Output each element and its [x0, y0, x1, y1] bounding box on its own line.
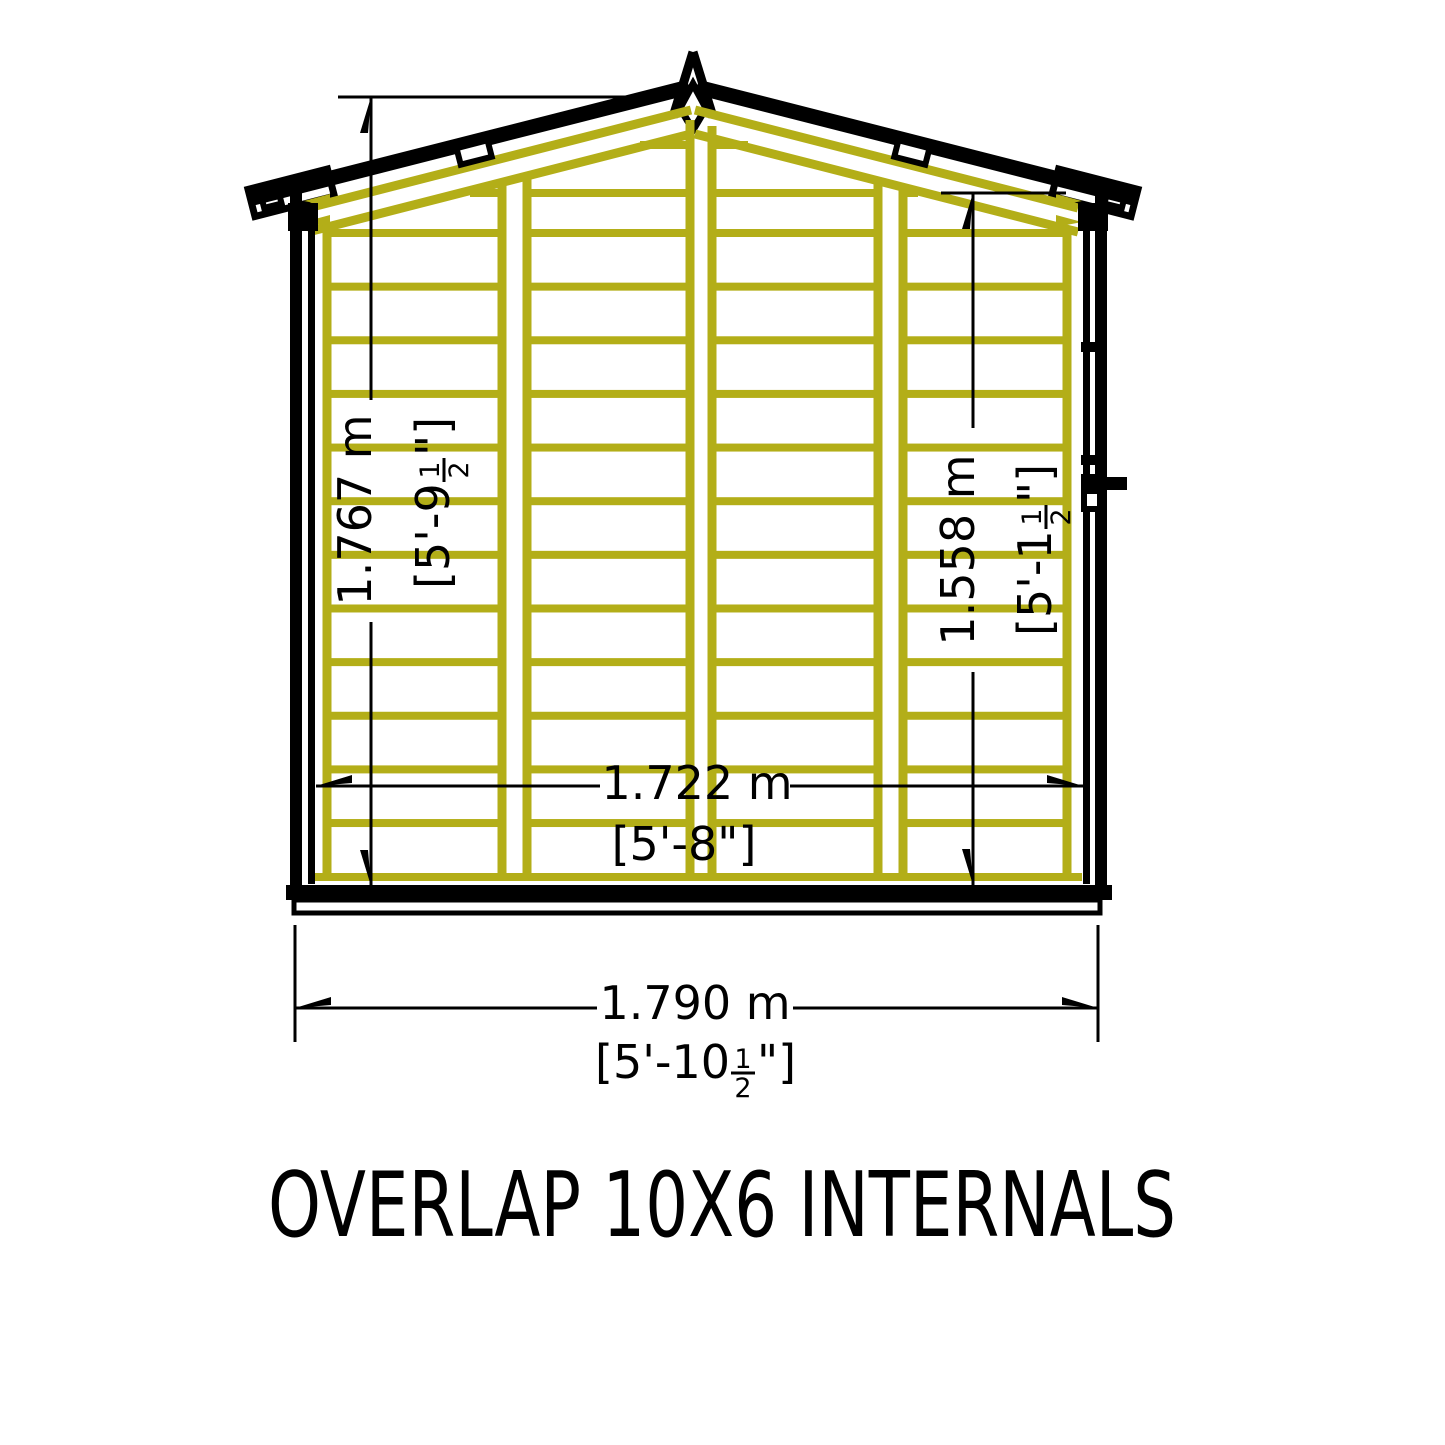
door-handle — [1107, 477, 1127, 490]
rail — [527, 283, 690, 291]
rail — [903, 819, 1067, 827]
svg-text:"]: "] — [757, 1035, 796, 1089]
internal-width-metric: 1.722 m — [601, 756, 792, 810]
gable-rail — [470, 189, 502, 197]
rail — [712, 551, 878, 559]
rail — [327, 283, 502, 291]
rail — [903, 658, 1067, 666]
stud — [498, 181, 507, 881]
ridge-height-metric: 1.767 m — [328, 414, 382, 605]
rail — [712, 336, 878, 344]
external-width-imperial: [5'-10 1 2 "] — [595, 1035, 796, 1104]
rail — [527, 551, 690, 559]
rail — [903, 390, 1067, 398]
arrow-left-icon — [316, 775, 352, 786]
internal-width-imperial: [5'-8"] — [612, 817, 757, 871]
rail — [712, 712, 878, 720]
eaves-height-metric: 1.558 m — [931, 454, 985, 645]
rail — [903, 765, 1067, 773]
apex-finial — [673, 52, 713, 130]
gable-rail — [527, 189, 690, 197]
gable-rail — [712, 141, 748, 149]
left-wall — [288, 192, 318, 899]
rail — [903, 444, 1067, 452]
right-rafter-lower — [695, 134, 1078, 232]
svg-text:[5'-10: [5'-10 — [595, 1035, 730, 1089]
svg-text:2: 2 — [444, 461, 475, 478]
rail — [527, 390, 690, 398]
stud — [523, 174, 532, 881]
gable-rail — [712, 189, 878, 197]
svg-text:"]: "] — [406, 417, 460, 456]
svg-text:1: 1 — [734, 1044, 751, 1075]
rail — [327, 390, 502, 398]
rail — [712, 283, 878, 291]
svg-text:"]: "] — [1008, 464, 1062, 503]
rail — [712, 497, 878, 505]
svg-text:[5'-1: [5'-1 — [1008, 530, 1062, 636]
rail — [903, 283, 1067, 291]
rail — [903, 229, 1067, 237]
arrow-left-icon — [295, 997, 331, 1008]
rail — [327, 819, 502, 827]
rail — [327, 712, 502, 720]
rail — [527, 712, 690, 720]
right-wall — [1078, 192, 1127, 899]
rail — [327, 336, 502, 344]
rail — [712, 658, 878, 666]
arrow-up-icon — [360, 97, 371, 133]
svg-text:2: 2 — [734, 1073, 751, 1104]
svg-text:2: 2 — [1046, 508, 1077, 525]
stud — [899, 186, 908, 881]
floor — [286, 885, 1112, 913]
rail — [903, 336, 1067, 344]
rail — [712, 444, 878, 452]
rail — [712, 229, 878, 237]
gable-rail — [640, 141, 690, 149]
rail — [527, 229, 690, 237]
door-lock — [1081, 474, 1127, 512]
bottom-sill — [312, 873, 1082, 881]
external-width-metric: 1.790 m — [599, 976, 790, 1030]
page: 1.767 m [5'-9 1 2 "] 1.558 m [5'-1 1 2 "… — [0, 0, 1445, 1445]
floor-skid — [294, 900, 1100, 913]
rail — [327, 229, 502, 237]
rail — [903, 712, 1067, 720]
rail — [527, 336, 690, 344]
rail — [527, 604, 690, 612]
shed-internals-drawing: 1.767 m [5'-9 1 2 "] 1.558 m [5'-1 1 2 "… — [0, 0, 1445, 1445]
stud — [874, 179, 883, 881]
rail — [327, 658, 502, 666]
rail — [712, 604, 878, 612]
rail — [327, 765, 502, 773]
right-roof-clip — [894, 140, 929, 164]
rail — [527, 658, 690, 666]
drawing-title: OVERLAP 10X6 INTERNALS — [268, 1153, 1176, 1258]
svg-text:1: 1 — [1017, 508, 1048, 525]
rail — [527, 444, 690, 452]
rail — [527, 497, 690, 505]
rail — [712, 390, 878, 398]
svg-text:1: 1 — [415, 461, 446, 478]
svg-text:[5'-9: [5'-9 — [406, 483, 460, 589]
left-roof-clip — [457, 140, 492, 164]
arrow-right-icon — [1062, 997, 1098, 1008]
dimension-external-width: 1.790 m [5'-10 1 2 "] — [295, 925, 1098, 1104]
